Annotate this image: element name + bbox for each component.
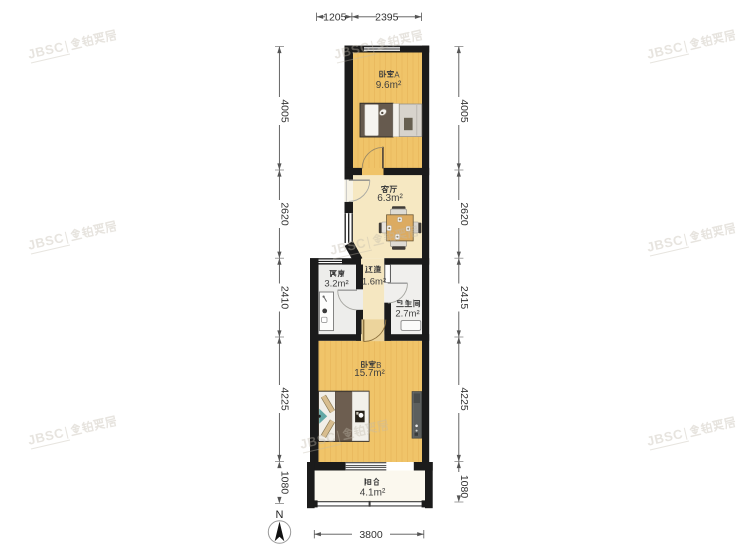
- svg-text:9.6m²: 9.6m²: [376, 80, 402, 91]
- svg-text:3.2m²: 3.2m²: [324, 278, 348, 289]
- svg-text:6.3m²: 6.3m²: [377, 193, 403, 204]
- svg-text:15.7m²: 15.7m²: [354, 368, 385, 379]
- svg-text:1.6m²: 1.6m²: [362, 276, 386, 287]
- svg-text:2.7m²: 2.7m²: [395, 308, 419, 319]
- svg-text:4.1m²: 4.1m²: [360, 488, 386, 499]
- svg-text:A: A: [394, 70, 400, 79]
